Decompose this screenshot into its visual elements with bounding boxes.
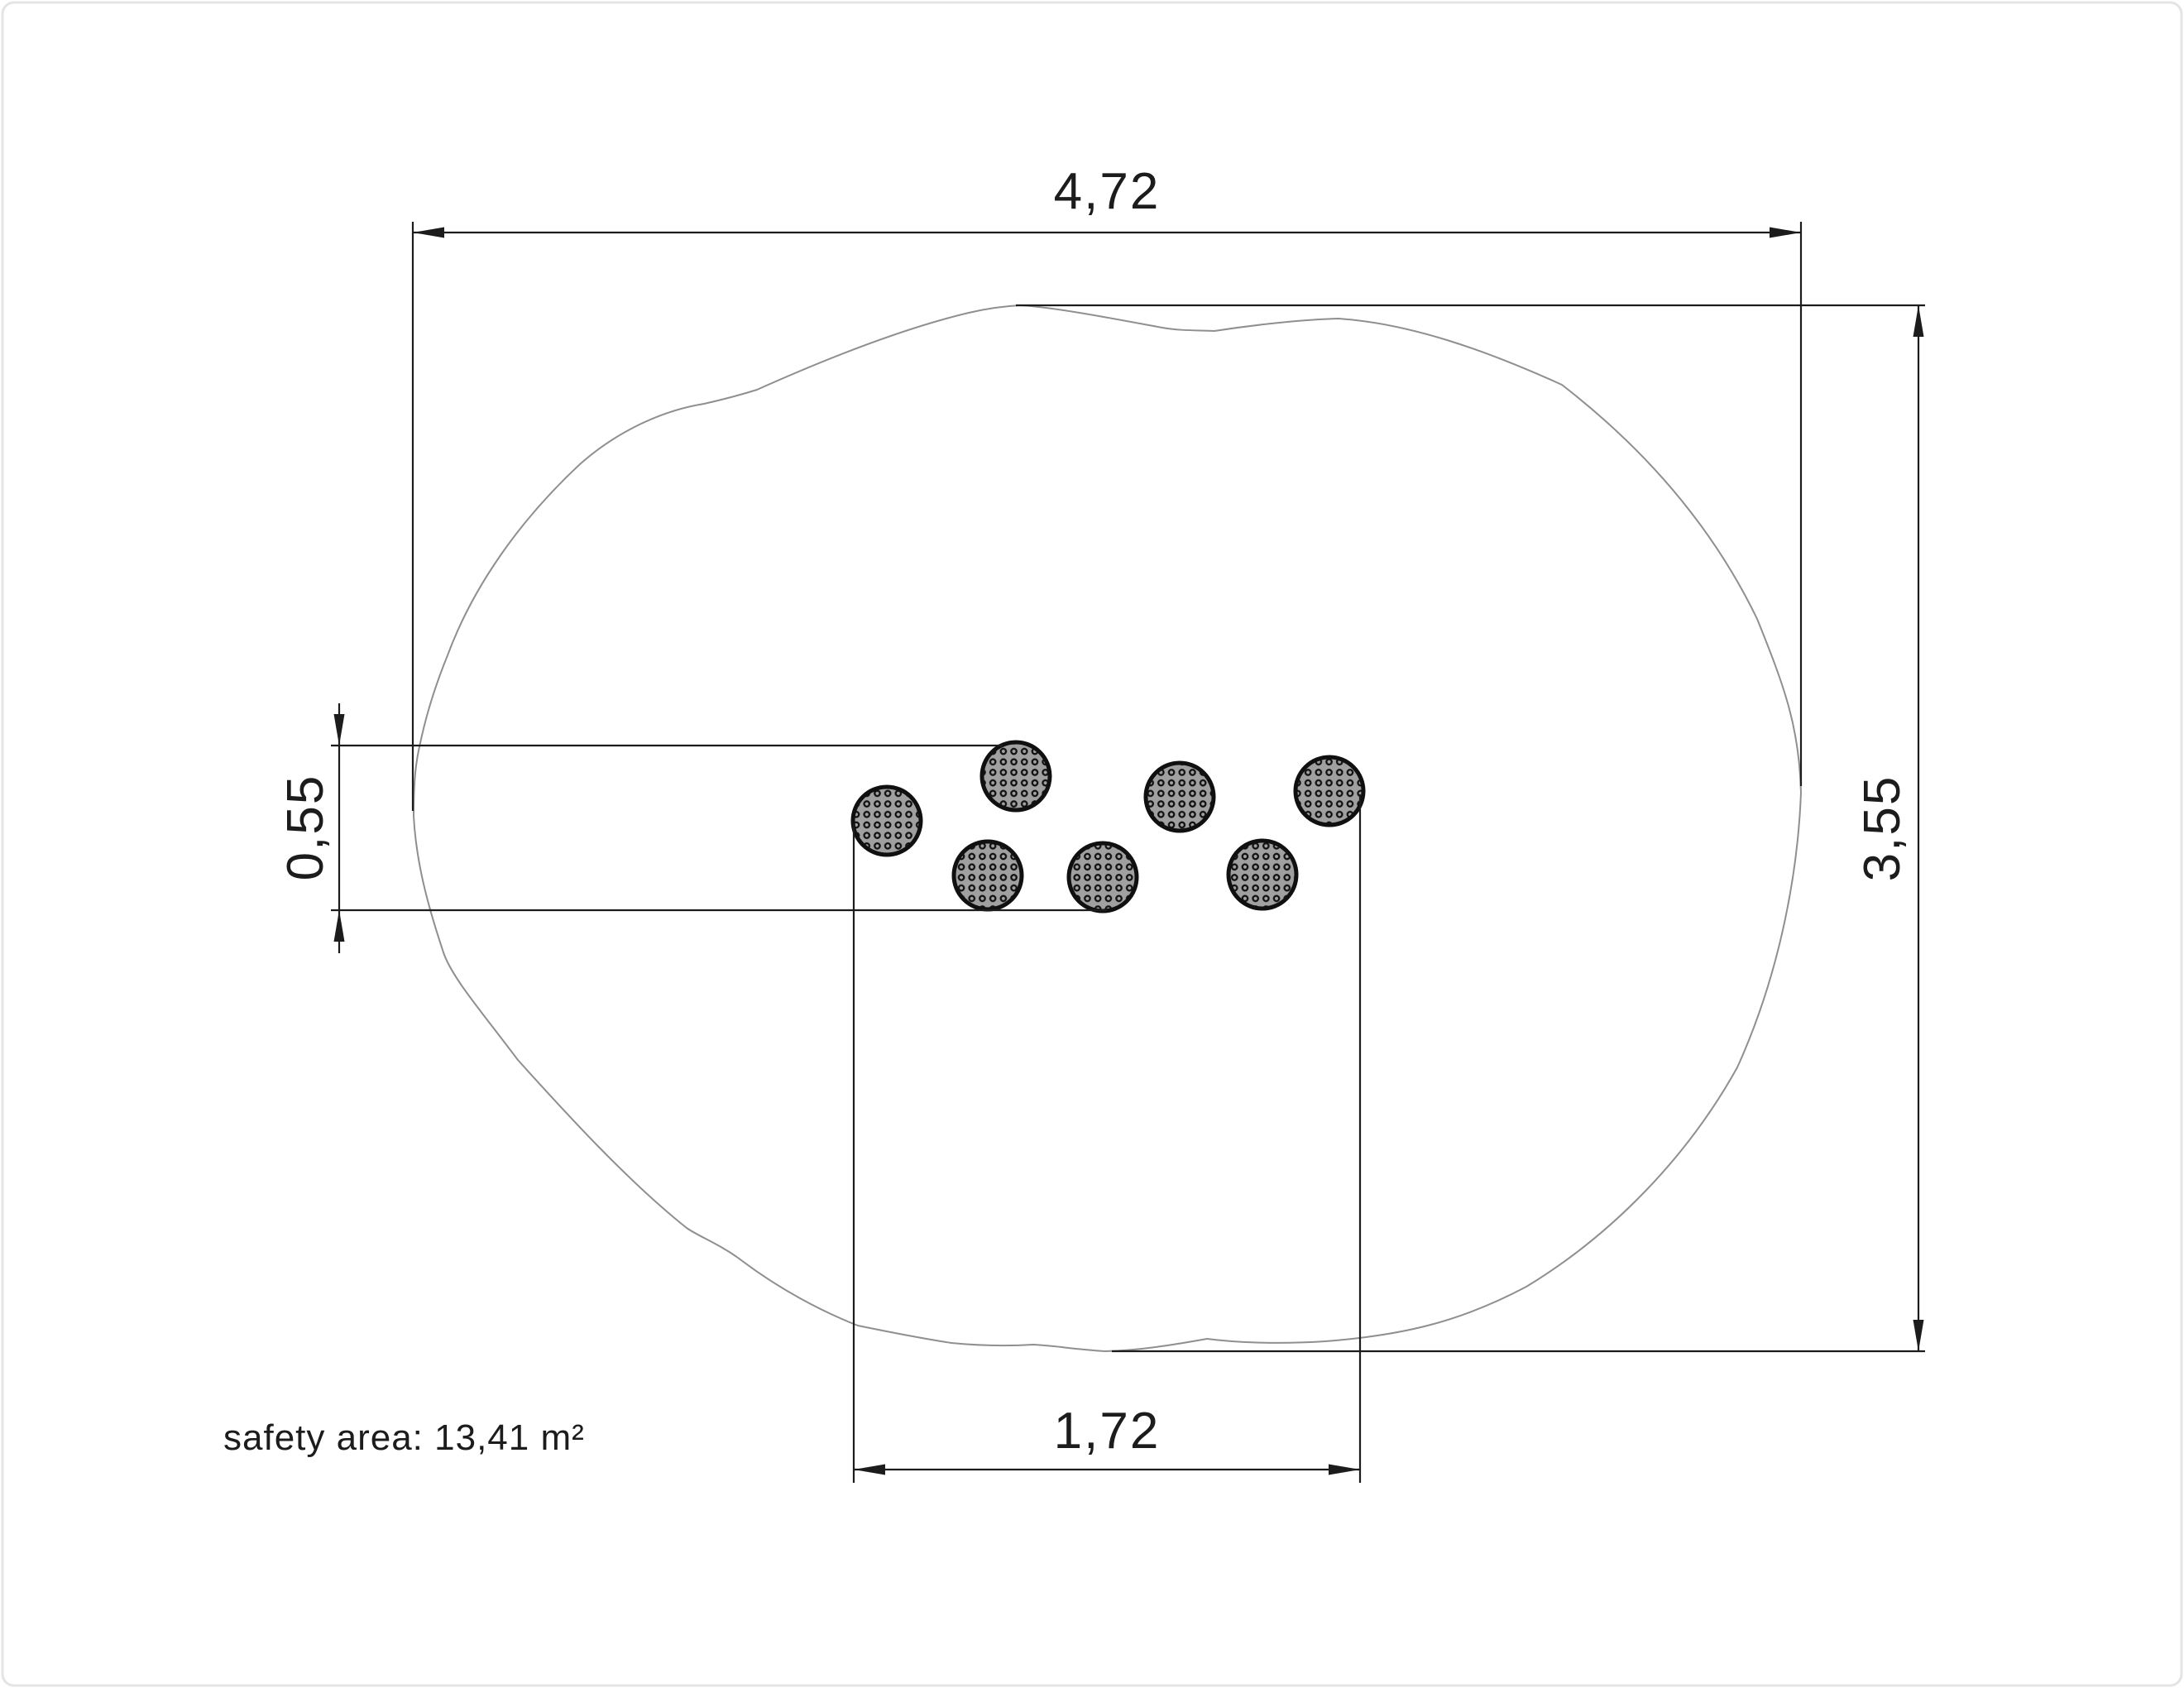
arrowhead-right xyxy=(1770,228,1801,238)
stepping-stone xyxy=(1296,757,1363,825)
stepping-stone xyxy=(954,842,1022,909)
arrowhead-left xyxy=(854,1465,885,1475)
dimension-overall-width: 4,72 xyxy=(413,163,1801,811)
stepping-stone xyxy=(1146,763,1214,831)
safety-area-outline xyxy=(414,305,1801,1351)
drawing-sheet: 4,72 3,55 0,55 1,72 safety area: 13,41 m… xyxy=(0,0,2184,1688)
dimension-label-overall-height: 3,55 xyxy=(1854,775,1911,882)
stepping-stones-group xyxy=(853,742,1363,911)
stepping-stone xyxy=(982,742,1050,810)
safety-area-technical-drawing: 4,72 3,55 0,55 1,72 safety area: 13,41 m… xyxy=(0,0,2184,1688)
dimension-label-stones-height: 0,55 xyxy=(277,774,334,881)
dimension-label-stones-width: 1,72 xyxy=(1054,1403,1161,1460)
stepping-stone xyxy=(1069,843,1137,911)
arrowhead-right xyxy=(1329,1465,1360,1475)
dimension-overall-height: 3,55 xyxy=(1016,305,1925,1351)
arrowhead-bottom xyxy=(1913,1320,1924,1351)
arrowhead-top xyxy=(1913,305,1924,337)
arrowhead-left xyxy=(413,228,444,238)
safety-area-note: safety area: 13,41 m² xyxy=(223,1417,585,1458)
stepping-stone xyxy=(853,787,921,855)
arrowhead-bottom xyxy=(334,910,345,942)
dimension-stones-height: 0,55 xyxy=(277,703,1107,953)
stepping-stone xyxy=(1228,841,1296,909)
arrowhead-top xyxy=(334,714,345,746)
dimension-label-overall-width: 4,72 xyxy=(1054,163,1161,220)
